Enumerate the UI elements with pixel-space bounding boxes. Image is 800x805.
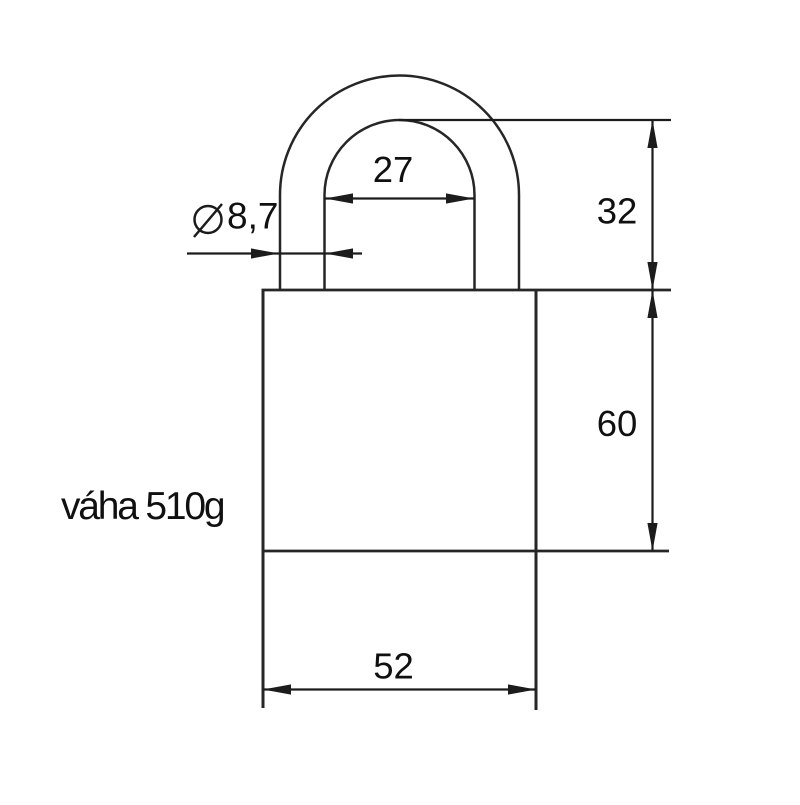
svg-text:27: 27: [373, 149, 414, 190]
svg-text:52: 52: [373, 646, 414, 687]
svg-text:8,7: 8,7: [227, 196, 278, 237]
svg-text:60: 60: [597, 403, 638, 444]
svg-text:32: 32: [597, 191, 638, 232]
svg-text:váha 510g: váha 510g: [61, 485, 224, 528]
